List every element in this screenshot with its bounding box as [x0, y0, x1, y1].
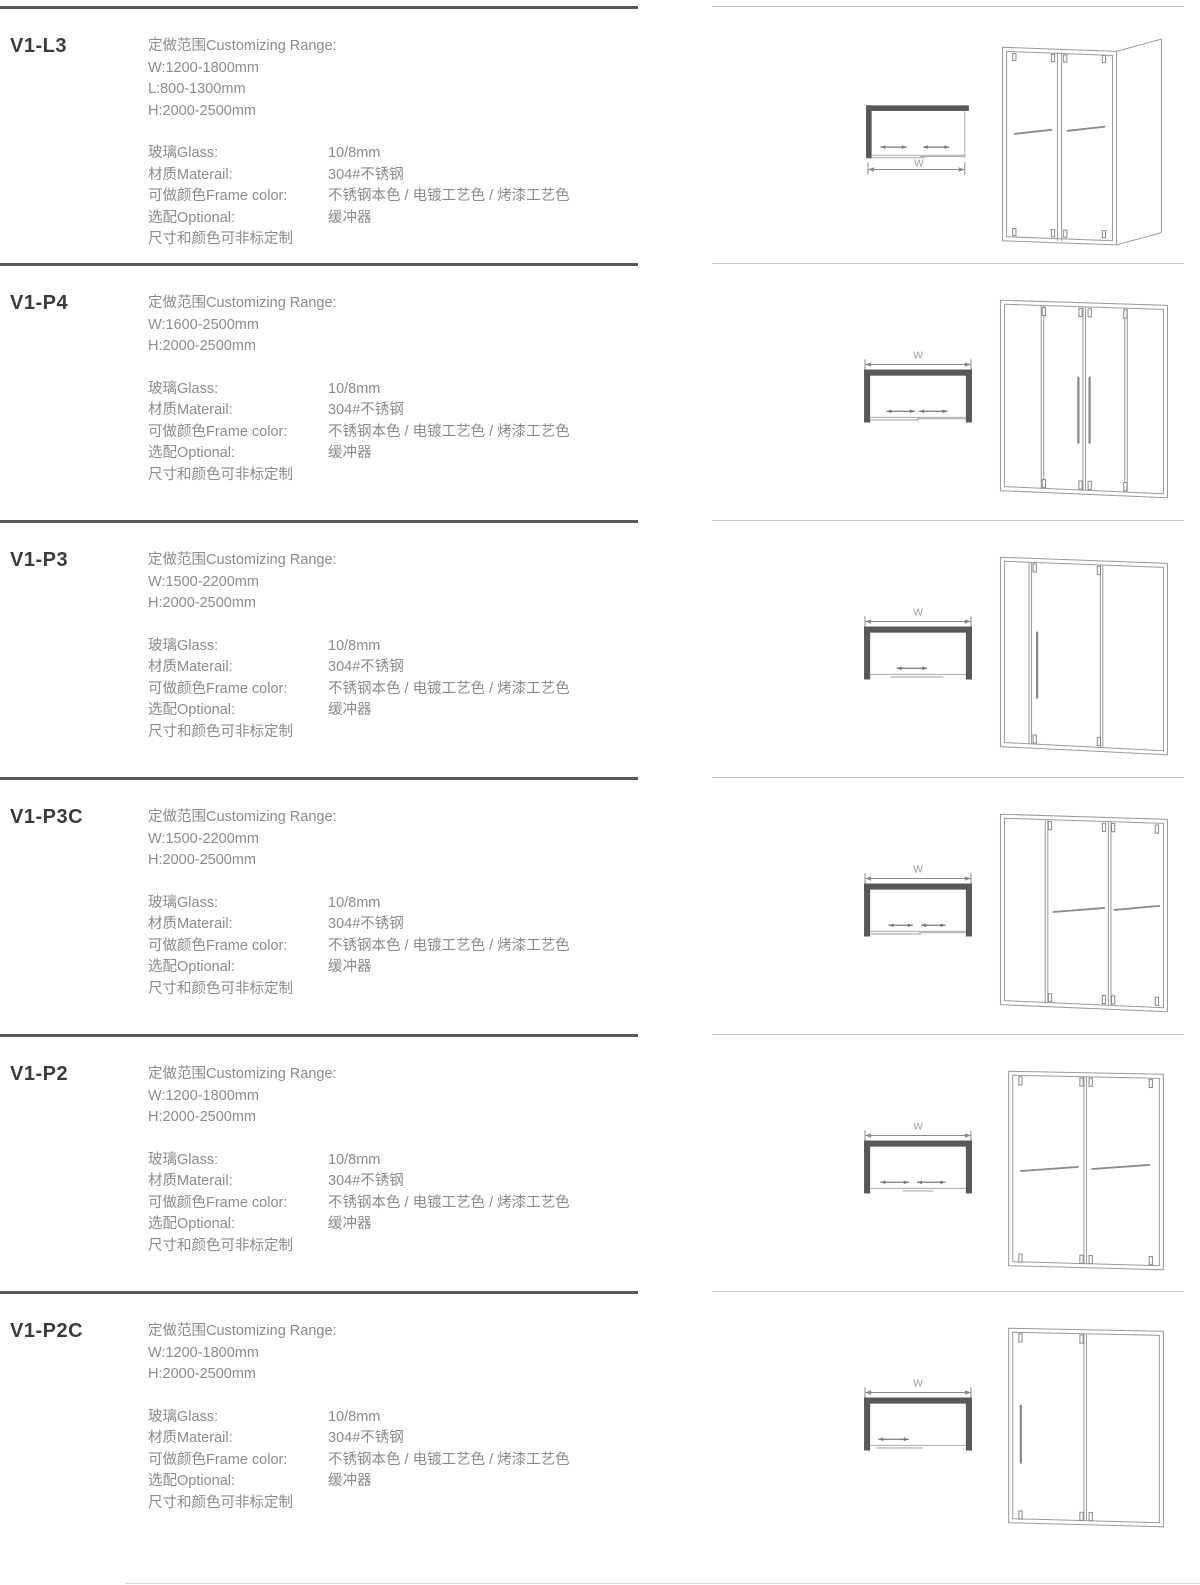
- spec-pair: 玻璃Glass:10/8mm: [148, 379, 618, 401]
- spec-value: 304#不锈钢: [328, 1171, 404, 1193]
- svg-text:W: W: [913, 864, 923, 875]
- spec-label: 材质Materail:: [148, 165, 328, 187]
- spec-pair: 材质Materail:304#不锈钢: [148, 914, 618, 936]
- spec-label: 可做颜色Frame color:: [148, 186, 328, 208]
- product-row-v1-p3c: V1-P3C 定做范围Customizing Range: W:1500-220…: [0, 777, 1200, 1034]
- range-title: 定做范围Customizing Range:: [148, 36, 618, 58]
- spec-label: 玻璃Glass:: [148, 143, 328, 165]
- spec-pair: 材质Materail:304#不锈钢: [148, 1171, 618, 1193]
- plan-view-drawing: W: [862, 1376, 974, 1470]
- spec-block: 定做范围Customizing Range: W:1500-2200mm H:2…: [148, 807, 618, 1000]
- spec-value: 不锈钢本色 / 电镀工艺色 / 烤漆工艺色: [328, 1193, 570, 1215]
- spec-value: 缓冲器: [328, 443, 372, 465]
- range-title: 定做范围Customizing Range:: [148, 1321, 618, 1343]
- spec-pair: 选配Optional:缓冲器: [148, 1471, 618, 1493]
- product-info: V1-P3 定做范围Customizing Range: W:1500-2200…: [0, 520, 638, 777]
- spec-pair: 可做颜色Frame color:不锈钢本色 / 电镀工艺色 / 烤漆工艺色: [148, 1450, 618, 1472]
- spec-block: 定做范围Customizing Range: W:1200-1800mm L:8…: [148, 36, 618, 251]
- spec-pair: 玻璃Glass:10/8mm: [148, 1150, 618, 1172]
- spec-label: 可做颜色Frame color:: [148, 679, 328, 701]
- range-line: H:2000-2500mm: [148, 593, 618, 615]
- spec-block: 定做范围Customizing Range: W:1200-1800mm H:2…: [148, 1321, 618, 1514]
- elevation-drawing: [994, 802, 1176, 1024]
- product-info: V1-P2 定做范围Customizing Range: W:1200-1800…: [0, 1034, 638, 1291]
- spec-value: 缓冲器: [328, 1214, 372, 1236]
- spec-pair: 材质Materail:304#不锈钢: [148, 657, 618, 679]
- spec-label: 材质Materail:: [148, 914, 328, 936]
- model-name: V1-P2C: [10, 1320, 83, 1343]
- spec-value: 缓冲器: [328, 208, 372, 230]
- custom-note: 尺寸和颜色可非标定制: [148, 979, 618, 1001]
- range-line: H:2000-2500mm: [148, 850, 618, 872]
- spec-label: 玻璃Glass:: [148, 1407, 328, 1429]
- product-drawings: W: [712, 777, 1184, 1034]
- elevation-drawing: [994, 1059, 1176, 1281]
- product-row-v1-p2c: V1-P2C 定做范围Customizing Range: W:1200-180…: [0, 1291, 1200, 1548]
- range-line: H:2000-2500mm: [148, 336, 618, 358]
- product-info: V1-L3 定做范围Customizing Range: W:1200-1800…: [0, 6, 638, 263]
- elevation-drawing: [994, 288, 1176, 510]
- spec-pair: 选配Optional:缓冲器: [148, 1214, 618, 1236]
- spec-label: 选配Optional:: [148, 1214, 328, 1236]
- model-name: V1-P3: [10, 549, 68, 572]
- spec-label: 选配Optional:: [148, 443, 328, 465]
- spec-value: 不锈钢本色 / 电镀工艺色 / 烤漆工艺色: [328, 422, 570, 444]
- svg-text:W: W: [914, 158, 924, 169]
- spec-value: 10/8mm: [328, 893, 380, 915]
- product-row-v1-p3: V1-P3 定做范围Customizing Range: W:1500-2200…: [0, 520, 1200, 777]
- spec-block: 定做范围Customizing Range: W:1600-2500mm H:2…: [148, 293, 618, 486]
- spec-pair: 玻璃Glass:10/8mm: [148, 636, 618, 658]
- spec-pair: 选配Optional:缓冲器: [148, 957, 618, 979]
- spacer: [148, 358, 618, 379]
- spec-value: 不锈钢本色 / 电镀工艺色 / 烤漆工艺色: [328, 186, 570, 208]
- model-name: V1-L3: [10, 35, 67, 58]
- custom-note: 尺寸和颜色可非标定制: [148, 722, 618, 744]
- spacer: [148, 1386, 618, 1407]
- catalog-page: V1-L3 定做范围Customizing Range: W:1200-1800…: [0, 0, 1200, 1585]
- custom-note: 尺寸和颜色可非标定制: [148, 465, 618, 487]
- product-drawings: W: [712, 1291, 1184, 1548]
- spec-label: 可做颜色Frame color:: [148, 936, 328, 958]
- svg-text:W: W: [913, 350, 923, 361]
- spec-pair: 玻璃Glass:10/8mm: [148, 1407, 618, 1429]
- range-line: L:800-1300mm: [148, 79, 618, 101]
- product-row-v1-l3: V1-L3 定做范围Customizing Range: W:1200-1800…: [0, 6, 1200, 263]
- range-line: H:2000-2500mm: [148, 1364, 618, 1386]
- range-line: W:1600-2500mm: [148, 315, 618, 337]
- plan-view-drawing: W: [862, 1119, 974, 1213]
- product-drawings: W: [712, 6, 1184, 263]
- spec-pair: 材质Materail:304#不锈钢: [148, 1428, 618, 1450]
- svg-text:W: W: [913, 1121, 923, 1132]
- spec-label: 选配Optional:: [148, 208, 328, 230]
- spec-pair: 选配Optional:缓冲器: [148, 700, 618, 722]
- spec-pair: 可做颜色Frame color:不锈钢本色 / 电镀工艺色 / 烤漆工艺色: [148, 1193, 618, 1215]
- range-line: H:2000-2500mm: [148, 1107, 618, 1129]
- spec-pair: 玻璃Glass:10/8mm: [148, 893, 618, 915]
- model-name: V1-P3C: [10, 806, 83, 829]
- spec-value: 缓冲器: [328, 700, 372, 722]
- spec-pair: 材质Materail:304#不锈钢: [148, 400, 618, 422]
- spec-value: 304#不锈钢: [328, 657, 404, 679]
- spec-value: 10/8mm: [328, 143, 380, 165]
- range-title: 定做范围Customizing Range:: [148, 293, 618, 315]
- custom-note: 尺寸和颜色可非标定制: [148, 1493, 618, 1515]
- spec-label: 玻璃Glass:: [148, 379, 328, 401]
- spec-label: 玻璃Glass:: [148, 636, 328, 658]
- spacer: [148, 615, 618, 636]
- spec-pair: 可做颜色Frame color:不锈钢本色 / 电镀工艺色 / 烤漆工艺色: [148, 422, 618, 444]
- product-drawings: W: [712, 263, 1184, 520]
- spec-value: 缓冲器: [328, 957, 372, 979]
- spec-label: 玻璃Glass:: [148, 893, 328, 915]
- spec-label: 材质Materail:: [148, 657, 328, 679]
- plan-view-drawing: W: [862, 862, 974, 956]
- spec-value: 304#不锈钢: [328, 400, 404, 422]
- spec-value: 10/8mm: [328, 1150, 380, 1172]
- model-name: V1-P2: [10, 1063, 68, 1086]
- spec-value: 304#不锈钢: [328, 1428, 404, 1450]
- svg-text:W: W: [913, 607, 923, 618]
- spec-label: 材质Materail:: [148, 1428, 328, 1450]
- custom-note: 尺寸和颜色可非标定制: [148, 229, 618, 251]
- model-name: V1-P4: [10, 292, 68, 315]
- range-line: W:1200-1800mm: [148, 58, 618, 80]
- spec-value: 不锈钢本色 / 电镀工艺色 / 烤漆工艺色: [328, 679, 570, 701]
- spec-value: 10/8mm: [328, 1407, 380, 1429]
- spec-block: 定做范围Customizing Range: W:1200-1800mm H:2…: [148, 1064, 618, 1257]
- spec-pair: 选配Optional:缓冲器: [148, 443, 618, 465]
- spec-value: 10/8mm: [328, 379, 380, 401]
- product-row-v1-p2: V1-P2 定做范围Customizing Range: W:1200-1800…: [0, 1034, 1200, 1291]
- product-info: V1-P2C 定做范围Customizing Range: W:1200-180…: [0, 1291, 638, 1548]
- range-title: 定做范围Customizing Range:: [148, 1064, 618, 1086]
- spacer: [148, 122, 618, 143]
- range-title: 定做范围Customizing Range:: [148, 807, 618, 829]
- range-line: W:1200-1800mm: [148, 1343, 618, 1365]
- spec-label: 选配Optional:: [148, 957, 328, 979]
- spec-label: 可做颜色Frame color:: [148, 422, 328, 444]
- spec-pair: 可做颜色Frame color:不锈钢本色 / 电镀工艺色 / 烤漆工艺色: [148, 936, 618, 958]
- range-line: W:1200-1800mm: [148, 1086, 618, 1108]
- elevation-drawing: [994, 545, 1176, 767]
- range-line: W:1500-2200mm: [148, 829, 618, 851]
- spec-value: 304#不锈钢: [328, 914, 404, 936]
- spec-pair: 可做颜色Frame color:不锈钢本色 / 电镀工艺色 / 烤漆工艺色: [148, 679, 618, 701]
- spec-label: 选配Optional:: [148, 1471, 328, 1493]
- product-drawings: W: [712, 1034, 1184, 1291]
- product-row-v1-p4: V1-P4 定做范围Customizing Range: W:1600-2500…: [0, 263, 1200, 520]
- spec-block: 定做范围Customizing Range: W:1500-2200mm H:2…: [148, 550, 618, 743]
- plan-view-drawing: W: [862, 348, 974, 442]
- range-line: H:2000-2500mm: [148, 101, 618, 123]
- spec-label: 材质Materail:: [148, 400, 328, 422]
- custom-note: 尺寸和颜色可非标定制: [148, 1236, 618, 1258]
- product-info: V1-P3C 定做范围Customizing Range: W:1500-220…: [0, 777, 638, 1034]
- bottom-divider: [125, 1583, 1200, 1584]
- spec-label: 选配Optional:: [148, 700, 328, 722]
- spec-pair: 可做颜色Frame color:不锈钢本色 / 电镀工艺色 / 烤漆工艺色: [148, 186, 618, 208]
- spec-label: 材质Materail:: [148, 1171, 328, 1193]
- spec-label: 玻璃Glass:: [148, 1150, 328, 1172]
- spacer: [148, 872, 618, 893]
- spacer: [148, 1129, 618, 1150]
- spec-value: 10/8mm: [328, 636, 380, 658]
- product-info: V1-P4 定做范围Customizing Range: W:1600-2500…: [0, 263, 638, 520]
- spec-label: 可做颜色Frame color:: [148, 1450, 328, 1472]
- spec-value: 304#不锈钢: [328, 165, 404, 187]
- spec-value: 不锈钢本色 / 电镀工艺色 / 烤漆工艺色: [328, 1450, 570, 1472]
- spec-pair: 选配Optional:缓冲器: [148, 208, 618, 230]
- svg-text:W: W: [913, 1378, 923, 1389]
- spec-value: 缓冲器: [328, 1471, 372, 1493]
- spec-value: 不锈钢本色 / 电镀工艺色 / 烤漆工艺色: [328, 936, 570, 958]
- elevation-drawing: [994, 1316, 1176, 1538]
- range-title: 定做范围Customizing Range:: [148, 550, 618, 572]
- elevation-drawing: [994, 31, 1176, 253]
- range-line: W:1500-2200mm: [148, 572, 618, 594]
- plan-view-drawing: W: [862, 605, 974, 699]
- spec-pair: 玻璃Glass:10/8mm: [148, 143, 618, 165]
- spec-pair: 材质Materail:304#不锈钢: [148, 165, 618, 187]
- spec-label: 可做颜色Frame color:: [148, 1193, 328, 1215]
- plan-view-drawing: W: [864, 99, 976, 185]
- product-drawings: W: [712, 520, 1184, 777]
